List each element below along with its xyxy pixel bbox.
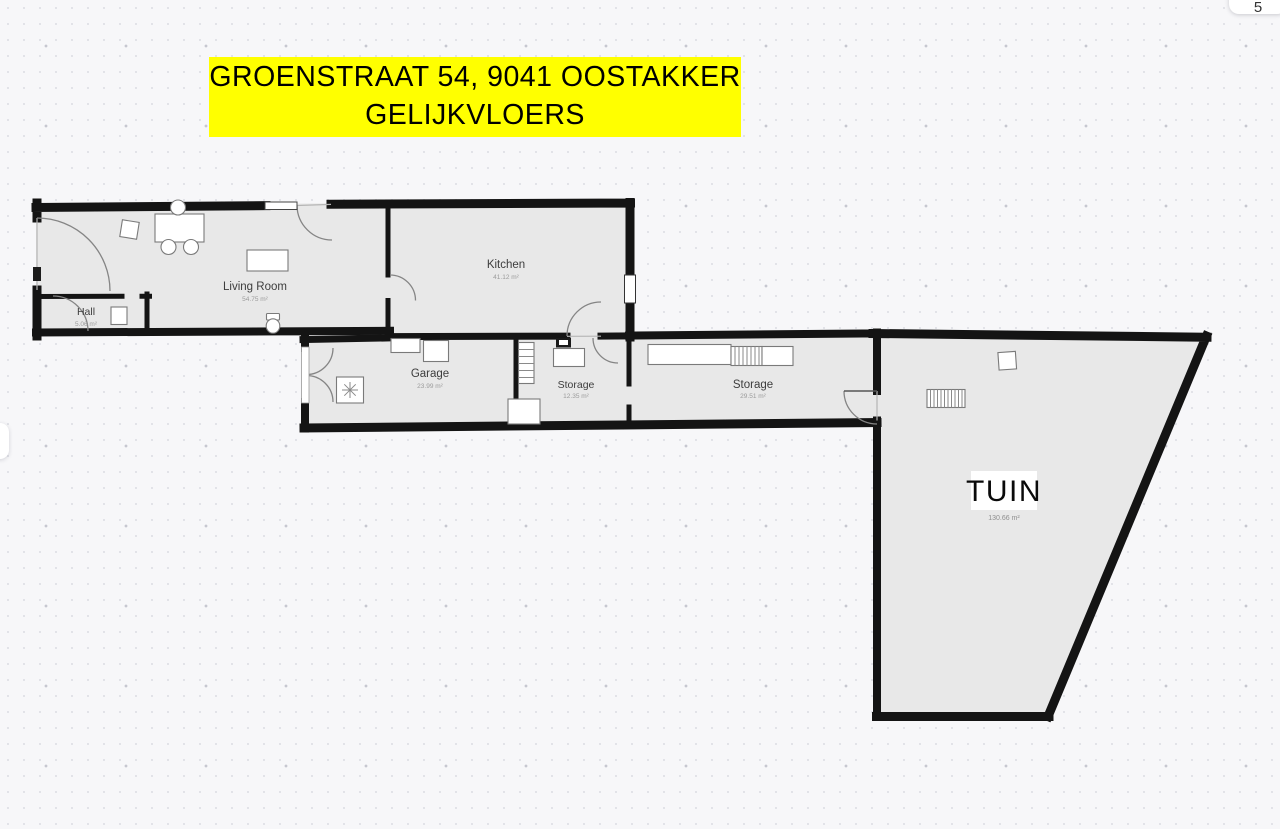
floor-line: GELIJKVLOERS bbox=[365, 97, 585, 135]
corner-toolbar-button[interactable]: 5 bbox=[1229, 0, 1280, 14]
garage-box-2-icon[interactable] bbox=[424, 341, 449, 362]
side-chair-icon[interactable] bbox=[120, 220, 139, 239]
workbench-icon[interactable] bbox=[648, 345, 793, 366]
floorplan-canvas: Hall 5.06 m² Living Room 54.75 m² Kitche… bbox=[0, 0, 1280, 829]
garden-bench-icon[interactable] bbox=[927, 390, 965, 408]
room-area-storage-small: 12.35 m² bbox=[563, 393, 589, 400]
window-kitchen-right bbox=[625, 275, 636, 303]
room-area-hall: 5.06 m² bbox=[75, 321, 98, 328]
window-living-top bbox=[265, 202, 297, 210]
garage-box-1-icon[interactable] bbox=[391, 339, 420, 353]
room-area-storage-large: 29.51 m² bbox=[740, 393, 766, 400]
room-label-tuin: TUIN bbox=[966, 475, 1042, 508]
room-floors bbox=[36, 202, 1206, 716]
address-banner: GROENSTRAAT 54, 9041 OOSTAKKER GELIJKVLO… bbox=[209, 57, 741, 137]
room-label-living: Living Room bbox=[223, 281, 287, 293]
wall-stub-left bbox=[33, 267, 41, 281]
room-area-kitchen: 41.12 m² bbox=[493, 274, 519, 281]
storage-counter-icon[interactable] bbox=[554, 349, 585, 367]
toilet-icon[interactable] bbox=[266, 314, 280, 334]
storage-wall-vent-inner bbox=[559, 340, 568, 345]
room-area-tuin: 130.66 m² bbox=[988, 515, 1020, 522]
hvac-unit-icon[interactable] bbox=[337, 377, 364, 403]
room-area-living: 54.75 m² bbox=[242, 296, 268, 303]
room-label-storage-large: Storage bbox=[733, 379, 773, 391]
room-label-kitchen: Kitchen bbox=[487, 259, 525, 271]
stairs-icon[interactable] bbox=[519, 343, 535, 384]
left-edge-handle[interactable] bbox=[0, 423, 9, 459]
room-tuin[interactable] bbox=[877, 333, 1206, 716]
room-label-garage: Garage bbox=[411, 368, 449, 380]
hall-table-icon[interactable] bbox=[111, 307, 127, 325]
room-label-hall: Hall bbox=[77, 306, 95, 318]
address-line: GROENSTRAAT 54, 9041 OOSTAKKER bbox=[209, 59, 740, 97]
room-area-garage: 23.99 m² bbox=[417, 383, 443, 390]
room-label-storage-small: Storage bbox=[558, 379, 595, 391]
garage-door-panel[interactable] bbox=[302, 347, 310, 403]
garage-box-3-icon[interactable] bbox=[508, 399, 540, 424]
corner-button-glyph: 5 bbox=[1254, 0, 1262, 14]
garden-chair-icon[interactable] bbox=[998, 351, 1017, 370]
sideboard-icon[interactable] bbox=[247, 250, 288, 271]
